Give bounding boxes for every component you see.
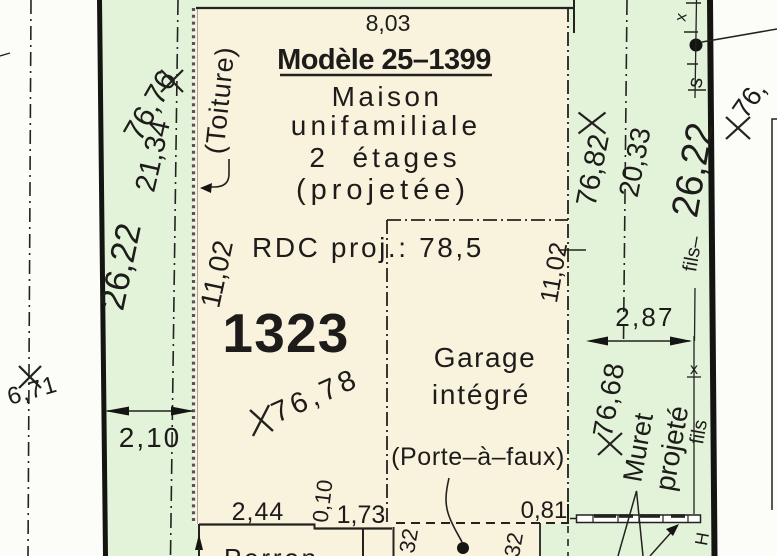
svg-text:0,81: 0,81 — [521, 497, 568, 524]
svg-text:32: 32 — [499, 530, 528, 556]
svg-text:1,73: 1,73 — [337, 501, 386, 529]
svg-text:RDC proj.: 78,5: RDC proj.: 78,5 — [252, 232, 484, 263]
svg-text:Garage: Garage — [434, 342, 536, 373]
svg-text:x: x — [690, 361, 698, 378]
svg-text:Modèle 25–1399: Modèle 25–1399 — [277, 44, 491, 76]
svg-text:8,03: 8,03 — [366, 10, 411, 36]
svg-text:Maison: Maison — [332, 81, 443, 112]
svg-text:intégré: intégré — [432, 379, 530, 410]
svg-text:2,10: 2,10 — [119, 422, 182, 453]
svg-text:2,87: 2,87 — [615, 302, 674, 332]
svg-text:2 étages: 2 étages — [309, 142, 460, 173]
svg-text:unifamiliale: unifamiliale — [291, 110, 481, 141]
svg-text:(projetée): (projetée) — [296, 174, 470, 206]
svg-text:(Porte–à–faux): (Porte–à–faux) — [391, 443, 565, 471]
svg-text:Perron: Perron — [224, 543, 319, 556]
svg-text:32: 32 — [394, 526, 423, 554]
svg-text:1323: 1323 — [222, 302, 349, 364]
svg-text:0,10: 0,10 — [308, 478, 338, 524]
svg-text:2,44: 2,44 — [232, 498, 285, 526]
